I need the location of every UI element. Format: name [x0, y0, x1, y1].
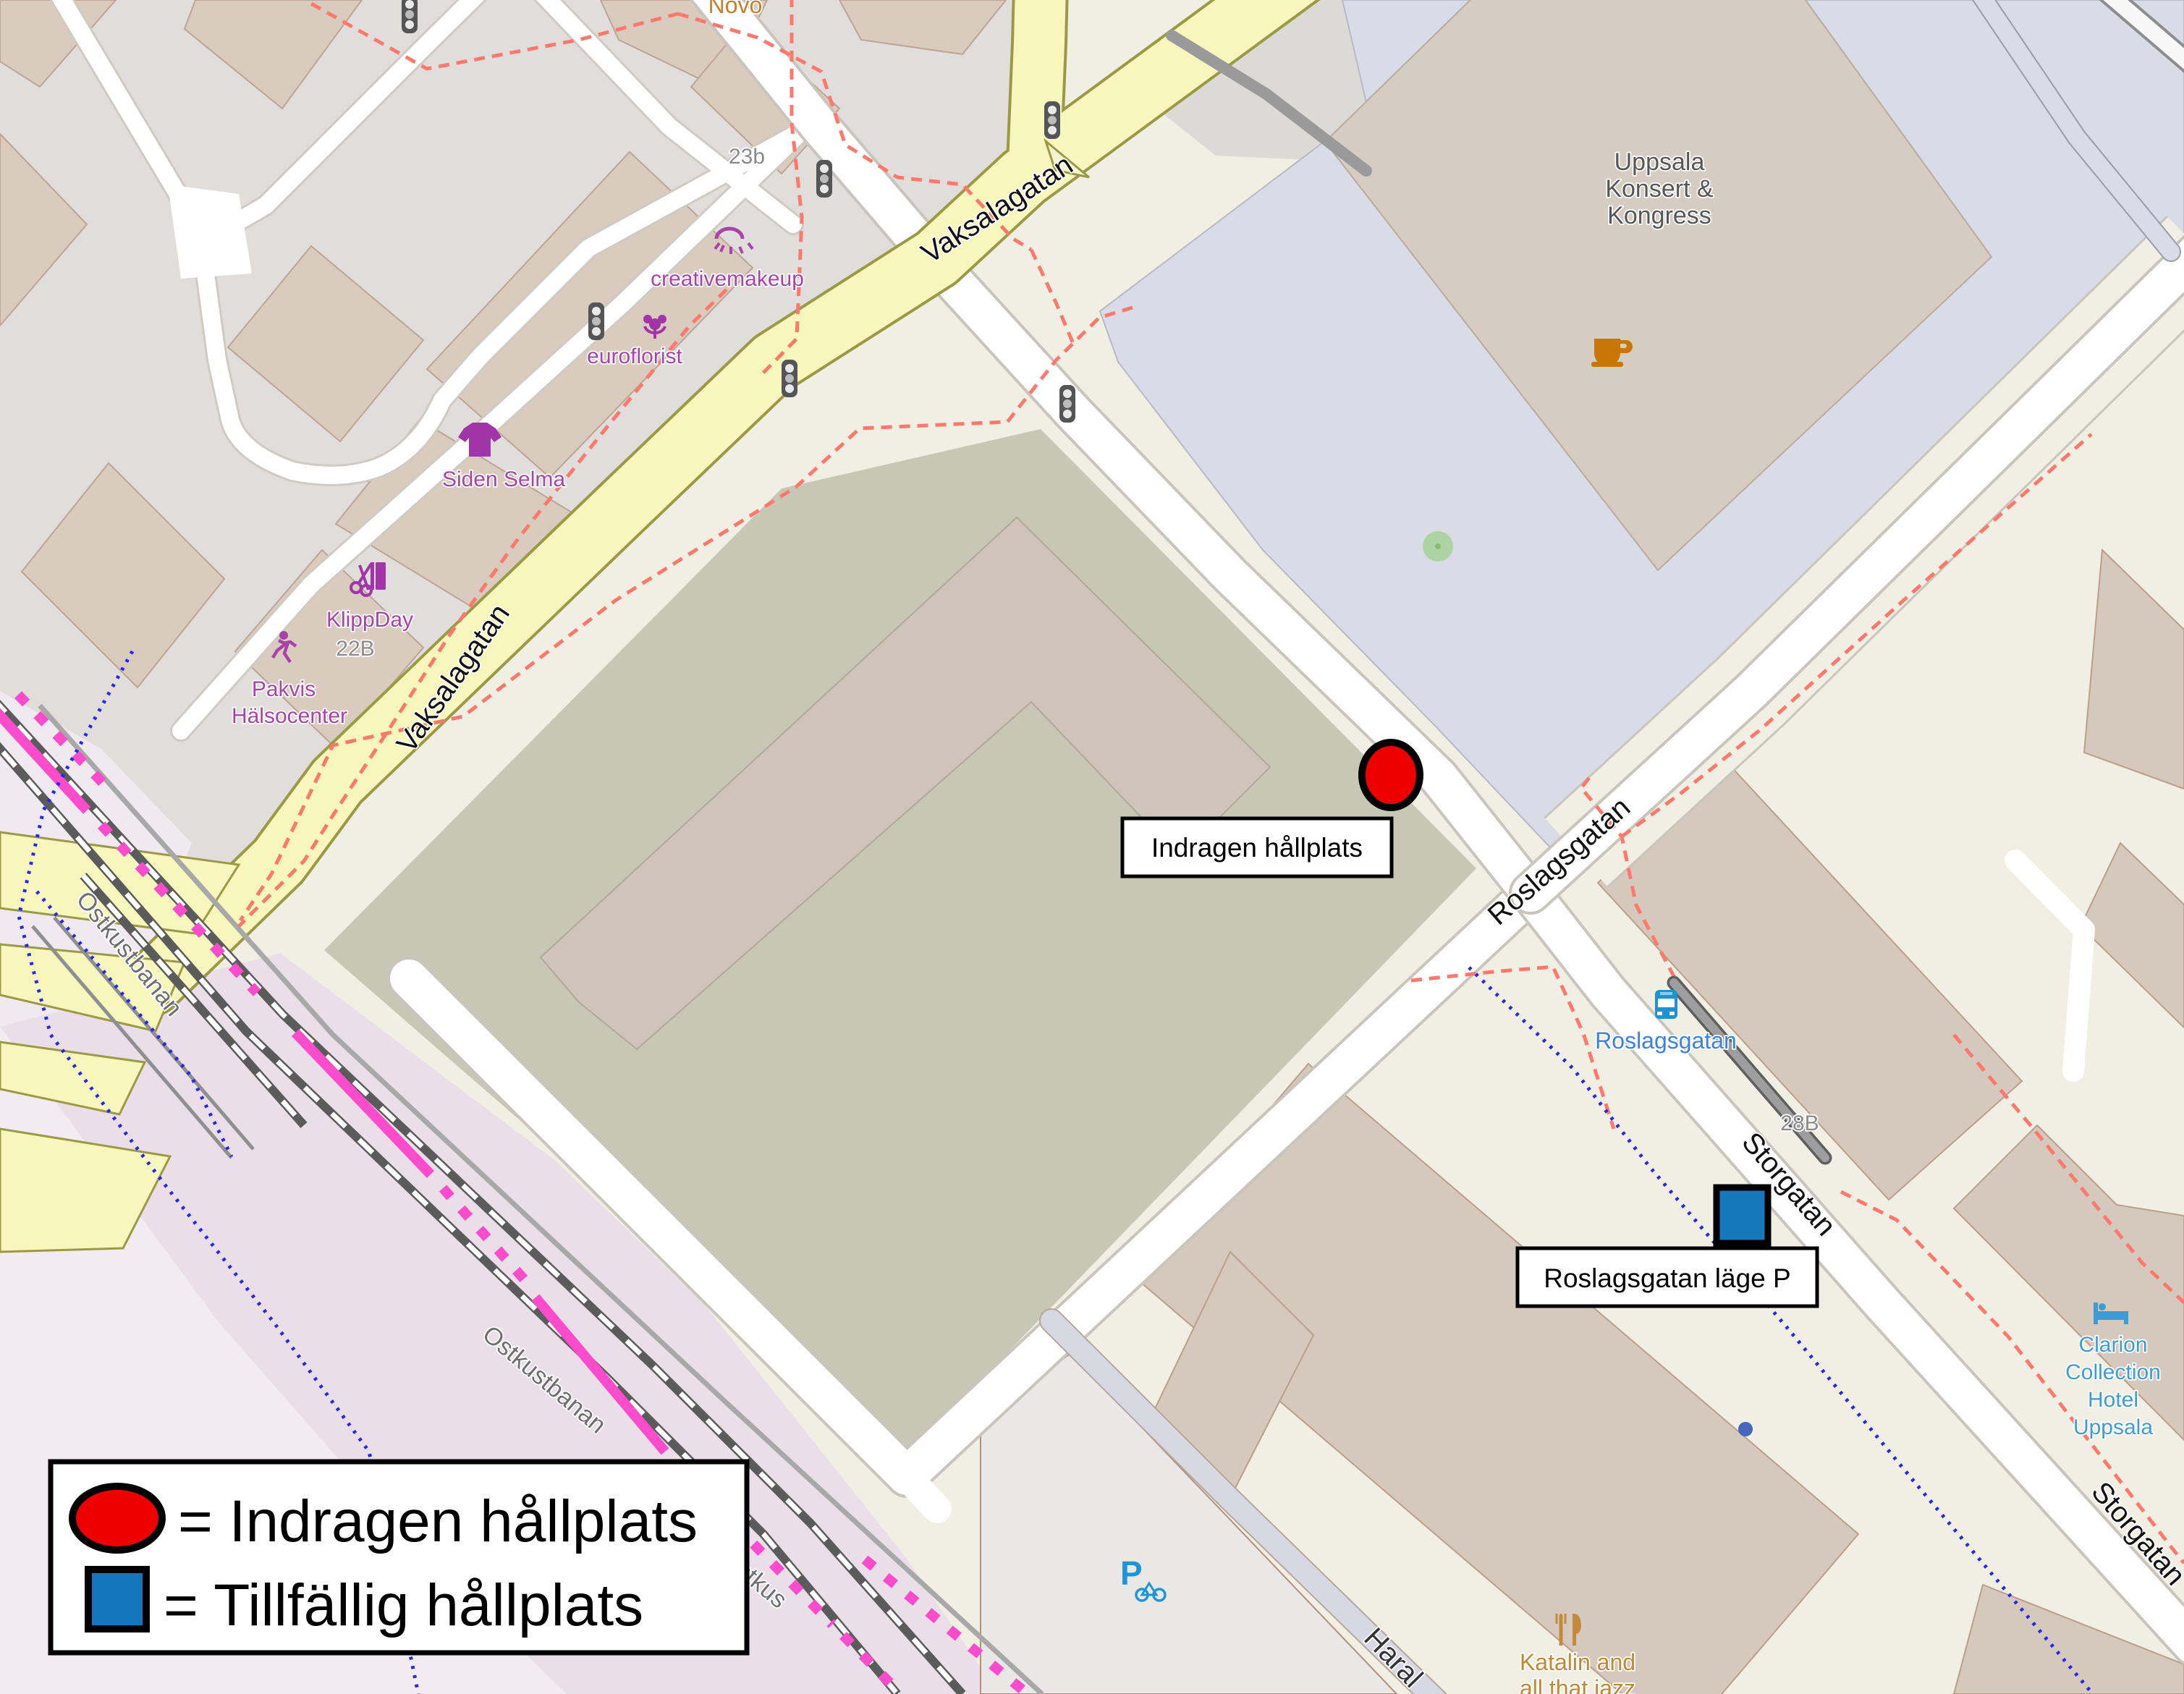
svg-text:Katalin and: Katalin and: [1520, 1649, 1635, 1675]
svg-text:Hälsocenter: Hälsocenter: [232, 704, 347, 728]
svg-text:Kongress: Kongress: [1607, 202, 1711, 229]
svg-text:Uppsala: Uppsala: [2073, 1415, 2153, 1439]
svg-text:P: P: [1120, 1554, 1143, 1592]
svg-text:Konsert &: Konsert &: [1605, 175, 1714, 203]
svg-text:Novo: Novo: [708, 0, 763, 18]
svg-text:= Tillfällig hållplats: = Tillfällig hållplats: [164, 1572, 643, 1638]
svg-text:euroflorist: euroflorist: [587, 344, 682, 368]
svg-text:Uppsala: Uppsala: [1614, 148, 1705, 176]
svg-text:Hotel: Hotel: [2088, 1388, 2138, 1412]
svg-text:23b: 23b: [729, 145, 765, 169]
svg-text:Collection: Collection: [2065, 1360, 2161, 1384]
svg-text:Roslagsgatan läge P: Roslagsgatan läge P: [1544, 1263, 1790, 1293]
svg-text:Siden Selma: Siden Selma: [442, 467, 565, 491]
svg-text:Roslagsgatan: Roslagsgatan: [1595, 1028, 1737, 1054]
svg-text:28B: 28B: [1780, 1111, 1819, 1135]
svg-text:= Indragen hållplats: = Indragen hållplats: [178, 1488, 698, 1554]
svg-text:Indragen hållplats: Indragen hållplats: [1151, 833, 1363, 863]
svg-text:creativemakeup: creativemakeup: [651, 267, 804, 291]
svg-text:22B: 22B: [336, 637, 374, 661]
svg-text:all that jazz: all that jazz: [1520, 1675, 1635, 1694]
svg-text:Clarion: Clarion: [2078, 1333, 2147, 1357]
svg-text:Pakvis: Pakvis: [252, 677, 316, 701]
svg-text:KlippDay: KlippDay: [326, 608, 413, 632]
